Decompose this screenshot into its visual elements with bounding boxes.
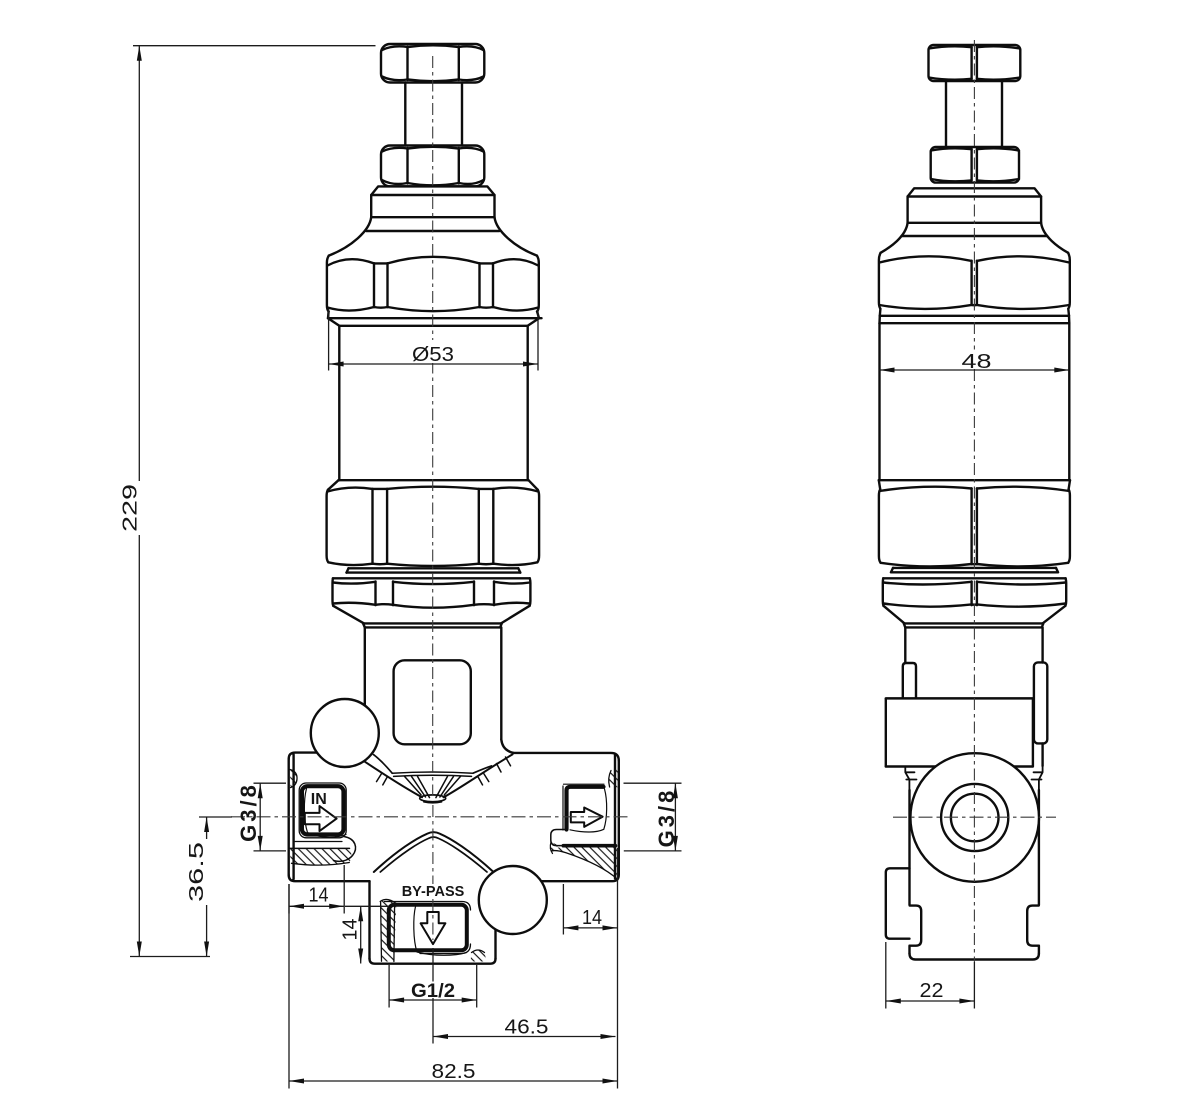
svg-text:36.5: 36.5: [186, 842, 208, 902]
svg-text:46.5: 46.5: [505, 1017, 549, 1039]
svg-text:G3/8: G3/8: [236, 782, 261, 842]
svg-text:229: 229: [120, 484, 142, 532]
svg-text:IN: IN: [311, 791, 327, 808]
svg-text:G1/2: G1/2: [411, 981, 455, 1002]
svg-text:14: 14: [309, 885, 329, 907]
svg-text:14: 14: [582, 907, 602, 929]
svg-text:82.5: 82.5: [432, 1061, 476, 1083]
svg-text:22: 22: [920, 980, 944, 1002]
svg-text:BY-PASS: BY-PASS: [402, 884, 465, 900]
svg-text:Ø53: Ø53: [412, 344, 454, 366]
svg-text:14: 14: [340, 919, 362, 941]
svg-text:G3/8: G3/8: [654, 788, 679, 848]
svg-text:48: 48: [962, 351, 992, 373]
